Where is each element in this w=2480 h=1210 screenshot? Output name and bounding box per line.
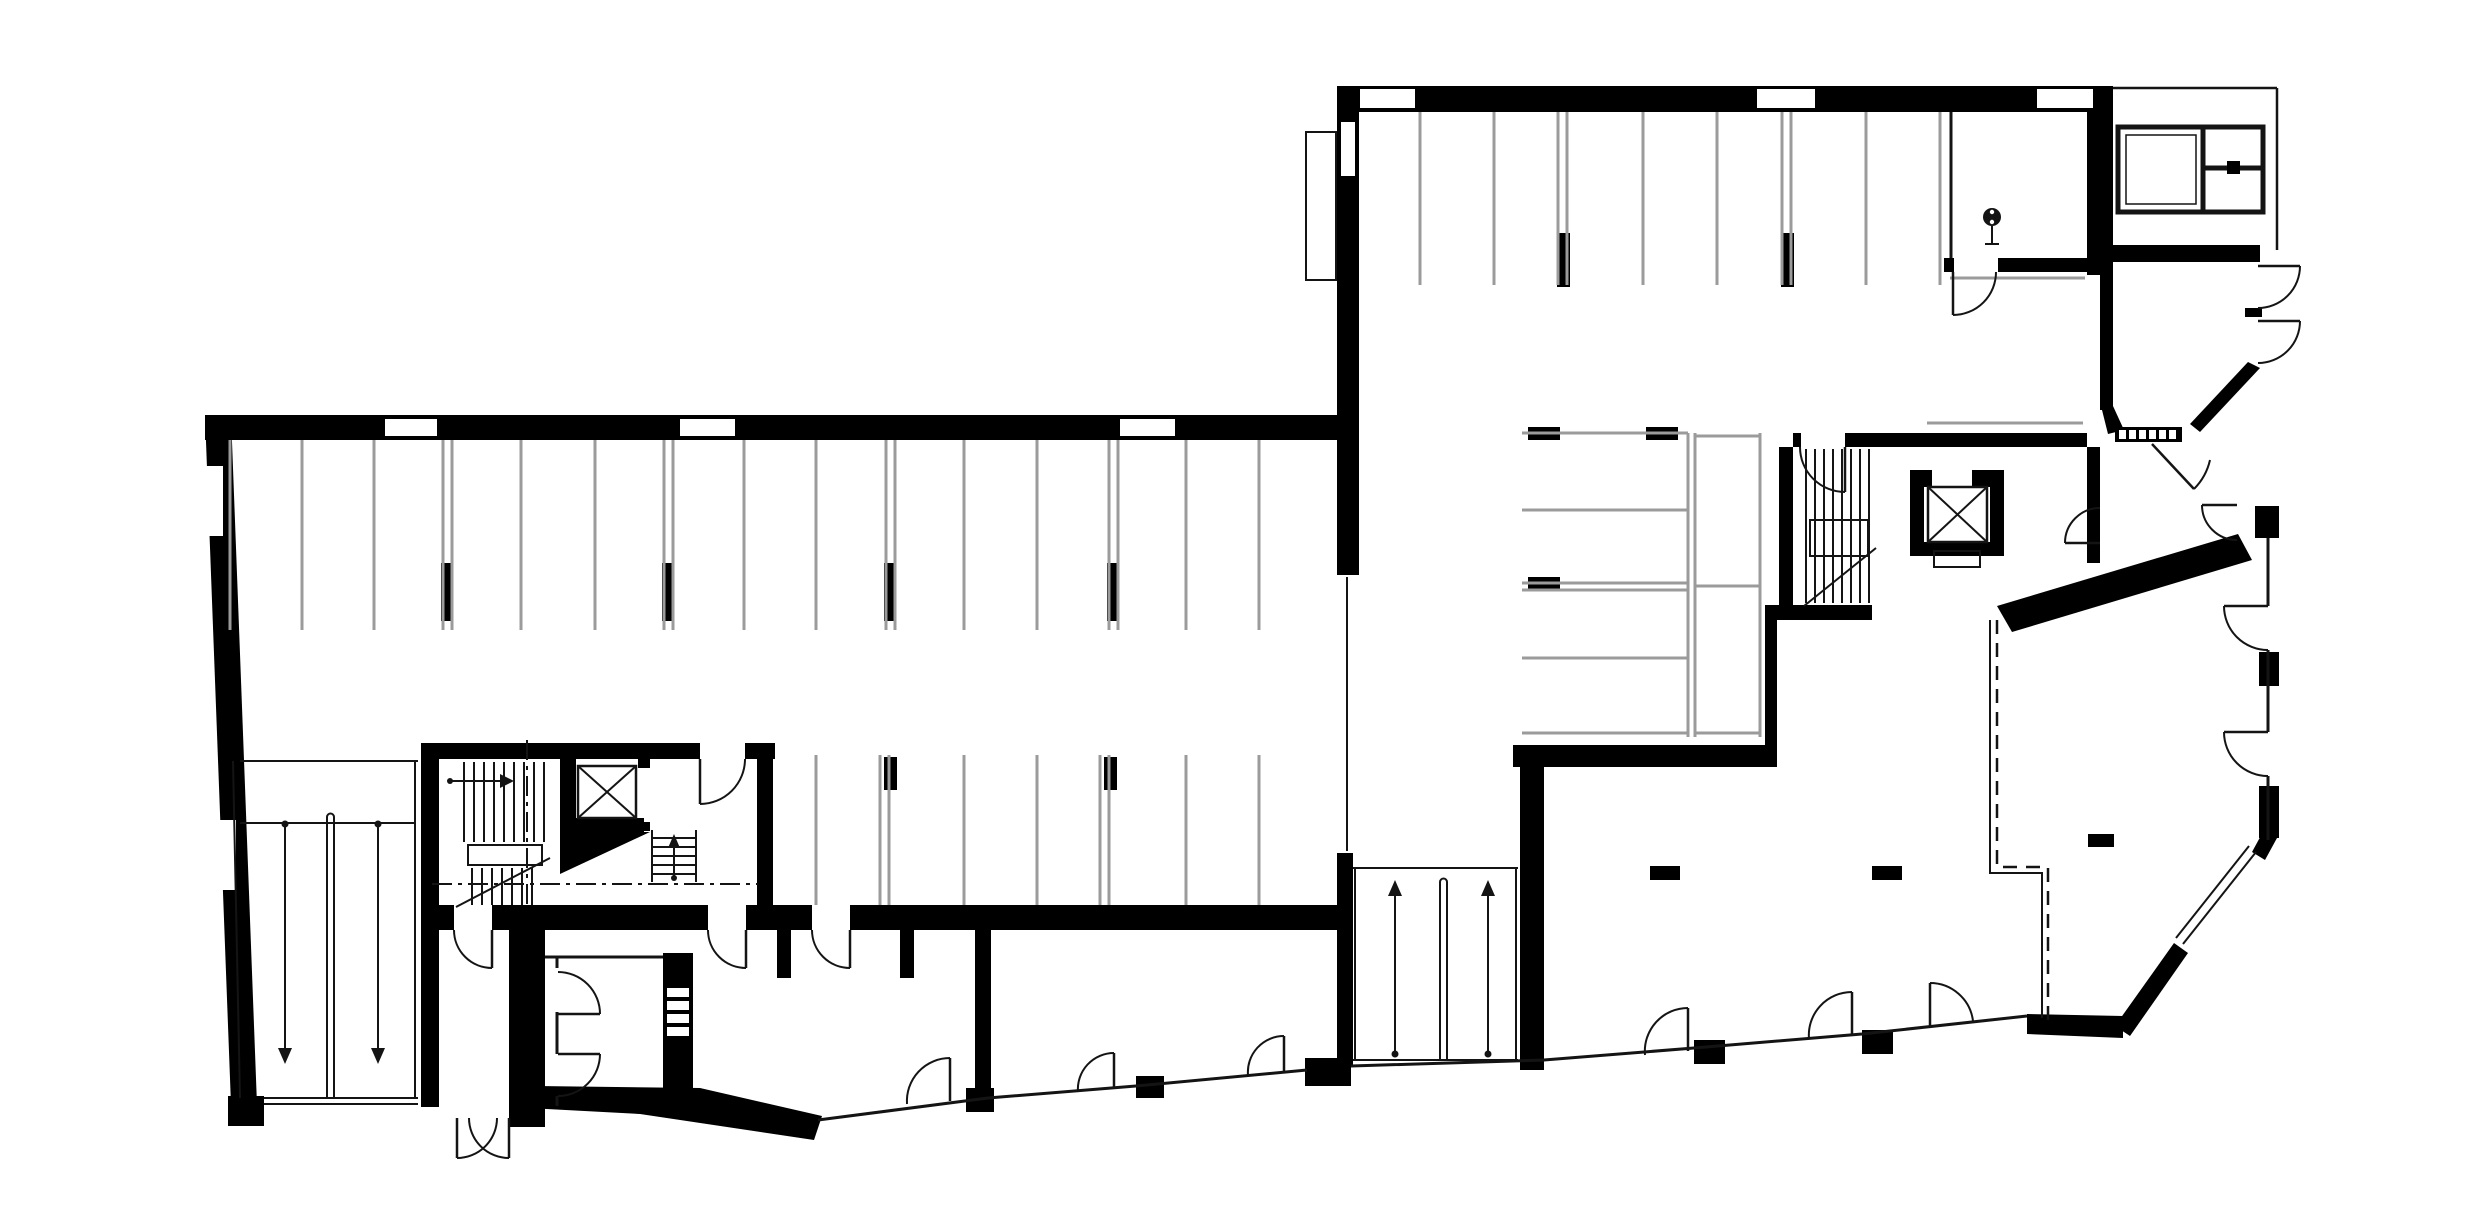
walls-layer-item <box>439 905 454 930</box>
walls-layer-item <box>1765 605 1777 755</box>
window <box>385 419 437 436</box>
step-hatch <box>667 1001 689 1010</box>
step-hatch <box>667 988 689 997</box>
symbols-layer-item <box>1990 220 1994 224</box>
walls-layer-item <box>492 905 708 930</box>
arrows-layer-item <box>671 875 677 881</box>
vent-hatch <box>2149 430 2156 439</box>
window <box>1757 89 1815 108</box>
arrows-layer-item <box>1392 1051 1399 1058</box>
wall-leftwing-bottom <box>850 905 1348 930</box>
window <box>1120 419 1175 436</box>
symbols-layer-item <box>2227 161 2240 174</box>
window <box>1360 89 1415 108</box>
walls-layer-item <box>1910 470 1932 487</box>
arrows-layer-item <box>1485 1051 1492 1058</box>
walls-layer-item <box>1944 258 1954 272</box>
step-hatch <box>667 1014 689 1023</box>
walls-layer-item <box>2245 308 2262 317</box>
symbols-layer-item <box>1990 210 1994 214</box>
walls-layer-item <box>1845 433 2087 447</box>
window <box>680 419 735 436</box>
wall-core-right <box>757 743 773 909</box>
walls-layer-item <box>1776 605 1872 620</box>
walls-layer-item <box>1793 433 1801 447</box>
wall-ramp-east <box>421 743 439 1107</box>
walls-layer-item <box>2087 447 2100 563</box>
vent-hatch <box>2159 430 2166 439</box>
walls-layer-item <box>1972 470 2004 487</box>
wall-rampM-west <box>1337 853 1353 1066</box>
walls-layer-item <box>1779 447 1793 605</box>
column <box>2088 834 2114 847</box>
floor-plan-page <box>0 0 2480 1210</box>
window <box>206 466 223 536</box>
walls-layer-item <box>439 743 700 759</box>
walls-layer-item <box>900 930 914 978</box>
wall-upper-top <box>1337 86 2113 112</box>
wall-leftwing-top <box>205 415 1359 440</box>
column <box>1694 1040 1725 1064</box>
column <box>1872 866 1902 880</box>
walls-layer-item <box>1513 745 1777 767</box>
walls-layer-item <box>777 930 791 978</box>
window <box>1341 122 1355 176</box>
walls-layer-item <box>2100 262 2113 410</box>
walls-layer-item <box>560 818 644 832</box>
column <box>1650 866 1680 880</box>
floor-plan-svg <box>0 0 2480 1210</box>
step-hatch <box>667 1027 689 1036</box>
walls-layer-item <box>975 930 991 1100</box>
vent-hatch <box>2169 430 2176 439</box>
wall-tableroom-bottom <box>2100 245 2260 262</box>
vent-hatch <box>2119 430 2126 439</box>
window <box>2037 89 2093 108</box>
walls-layer-item <box>1910 542 2004 556</box>
column-corner-east <box>2255 506 2279 538</box>
arrows-layer-item <box>447 778 453 784</box>
wall-rampM-east <box>1520 745 1544 1070</box>
walls-layer-item <box>746 905 812 930</box>
walls-layer-item <box>638 822 650 831</box>
walls-layer-item <box>1998 258 2113 272</box>
wall-corner-sw <box>228 1096 264 1126</box>
arrows-layer-item <box>375 821 382 828</box>
walls-layer-item <box>638 759 650 768</box>
arrows-layer-item <box>282 821 289 828</box>
vent-hatch <box>2139 430 2146 439</box>
vent-hatch <box>2129 430 2136 439</box>
